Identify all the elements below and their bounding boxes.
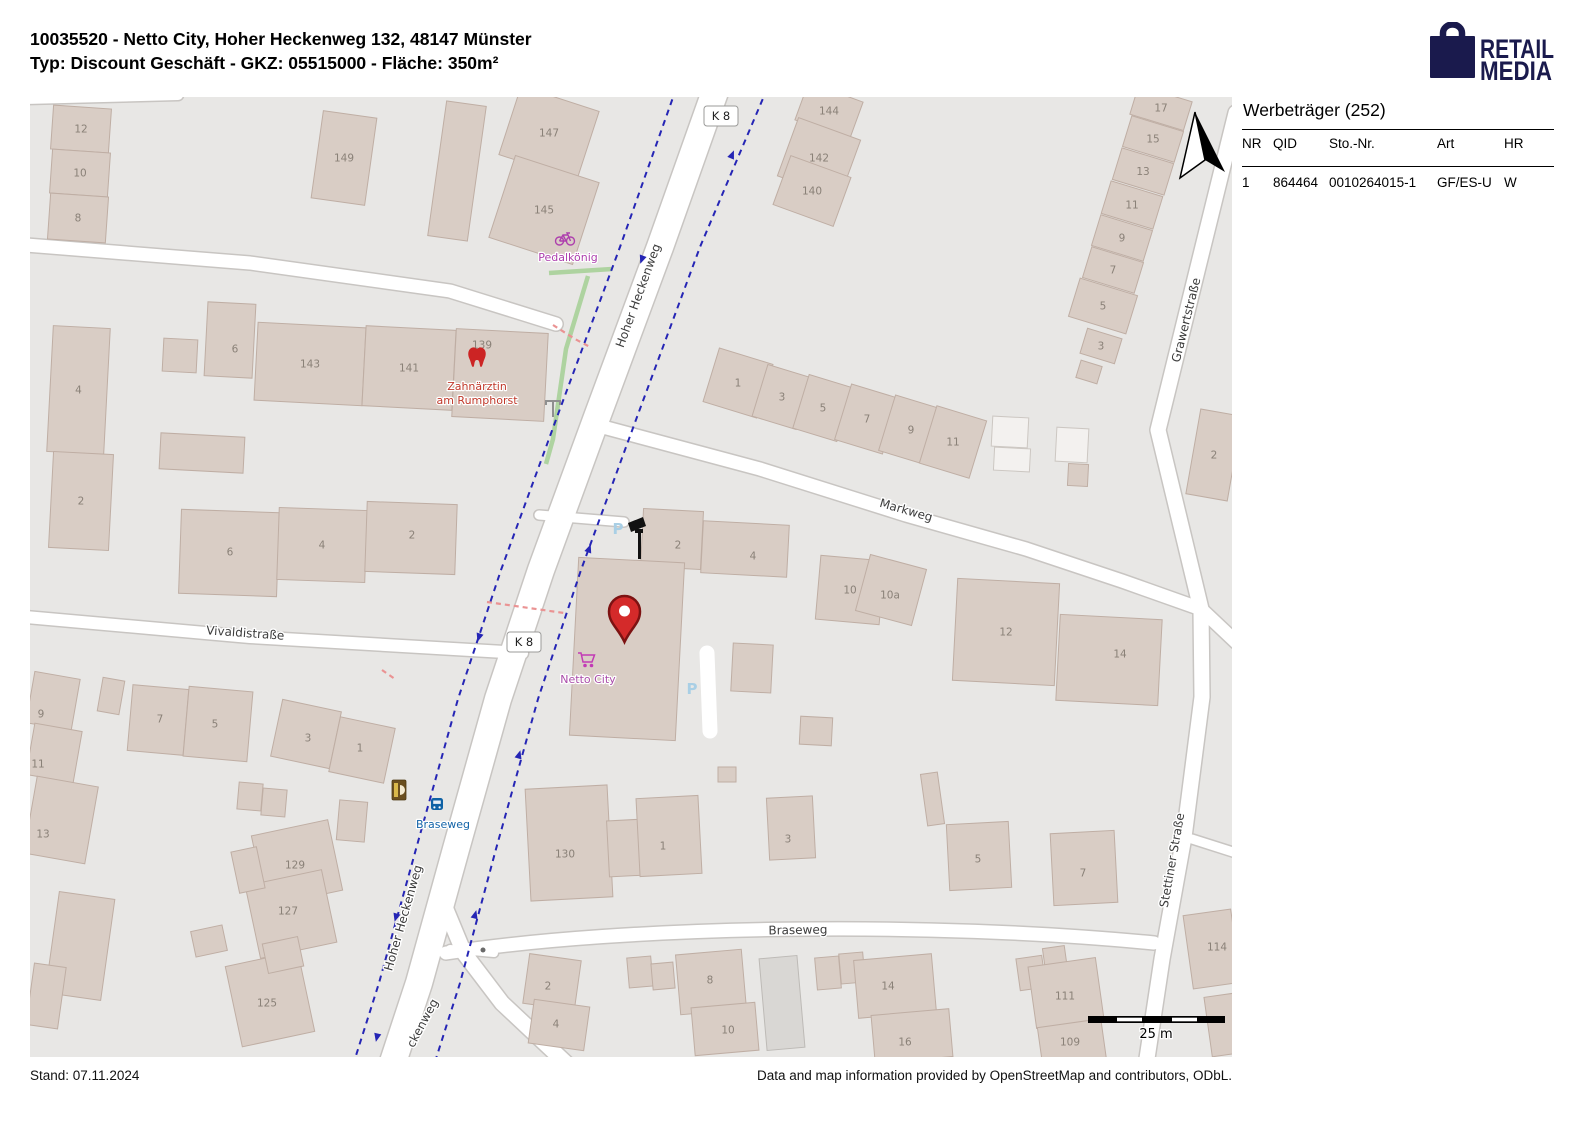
building (452, 329, 548, 422)
dentist-label-line2: am Rumphorst (436, 394, 518, 407)
building-number: 129 (285, 860, 305, 872)
table-header-row: NR QID Sto.-Nr. Art HR (1242, 130, 1554, 158)
building-number: 7 (1080, 868, 1087, 880)
building (651, 962, 675, 990)
building-number: 130 (555, 849, 575, 861)
building-number: 2 (545, 981, 552, 993)
building-number: 8 (707, 975, 714, 987)
store-title: 10035520 - Netto City, Hoher Heckenweg 1… (30, 28, 532, 52)
building-number: 144 (819, 106, 839, 118)
building-number: 14 (1113, 649, 1127, 661)
cell-art: GF/ES-U (1437, 175, 1504, 190)
building-number: 8 (75, 213, 82, 225)
building (993, 447, 1030, 472)
building-number: 16 (898, 1037, 912, 1049)
building-number: 12 (999, 627, 1012, 639)
building-number: 13 (36, 829, 49, 841)
parking-letter: P (687, 680, 698, 698)
building-number: 10 (73, 168, 86, 180)
building (799, 716, 832, 746)
building (731, 643, 773, 693)
bike-shop-label: Pedalkönig (538, 251, 598, 264)
building (428, 101, 487, 241)
building-number: 12 (74, 124, 87, 136)
werbetraeger-panel: Werbeträger (252) NR QID Sto.-Nr. Art HR… (1242, 100, 1554, 190)
building-number: 6 (232, 344, 239, 356)
building (871, 1009, 953, 1057)
road-ref-label: K 8 (515, 635, 534, 649)
cell-hr: W (1504, 175, 1554, 190)
retail-media-logo: RETAIL MEDIA (1428, 22, 1560, 91)
building (701, 521, 790, 577)
col-qid: QID (1273, 136, 1329, 151)
building (1067, 463, 1088, 486)
street-label: Braseweg (768, 922, 827, 937)
building-number: 17 (1154, 103, 1167, 115)
col-nr: NR (1242, 136, 1273, 151)
building-number: 10 (721, 1025, 734, 1037)
building-number: 10a (880, 590, 900, 602)
building-number: 3 (779, 392, 786, 404)
building-number: 6 (227, 547, 234, 559)
building (30, 963, 66, 1029)
building (759, 956, 805, 1051)
cell-stonr: 0010264015-1 (1329, 175, 1437, 190)
building (204, 302, 256, 378)
building-number: 1 (660, 841, 667, 853)
building-number: 9 (1119, 233, 1126, 245)
logo-text-media: MEDIA (1480, 56, 1552, 86)
building (854, 954, 937, 1019)
bus-stop-label: Braseweg (416, 818, 470, 831)
building (261, 788, 287, 817)
building-number: 2 (1211, 450, 1218, 462)
building (920, 772, 944, 826)
building-number: 147 (539, 128, 559, 140)
building-number: 1 (735, 378, 742, 390)
netto-building (569, 557, 684, 740)
col-art: Art (1437, 136, 1504, 151)
building-number: 3 (305, 733, 312, 745)
building-number: 127 (278, 906, 298, 918)
building-number: 141 (399, 363, 419, 375)
cell-nr: 1 (1242, 175, 1273, 190)
building-number: 143 (300, 359, 320, 371)
dentist-label-line1: Zahnärztin (447, 380, 507, 393)
building (237, 782, 263, 811)
road-service (30, 245, 556, 324)
building-number: 14 (881, 981, 895, 993)
table-row: 1 864464 0010264015-1 GF/ES-U W (1242, 167, 1554, 190)
building-number: 11 (1125, 200, 1138, 212)
building-number: 9 (38, 709, 45, 721)
buildings-layer: 1210814914714561431411394264214414214013… (30, 97, 1232, 1057)
building (336, 800, 367, 842)
building (30, 723, 82, 783)
building (1055, 427, 1089, 463)
building-number: 109 (1060, 1037, 1080, 1049)
road-ref-badge: K 8 (704, 106, 738, 126)
building-number: 149 (334, 153, 354, 165)
scale-bar: 25 m (1088, 1016, 1225, 1042)
road-ref-label: K 8 (712, 109, 731, 123)
report-page: 10035520 - Netto City, Hoher Heckenweg 1… (0, 0, 1587, 1123)
building (718, 767, 736, 782)
building (525, 785, 613, 901)
building-number: 145 (534, 205, 554, 217)
building (159, 433, 245, 473)
building-number: 3 (785, 834, 792, 846)
shopping-bag-icon (1430, 25, 1475, 78)
map-svg: 1210814914714561431411394264214414214013… (30, 97, 1232, 1057)
page-header: 10035520 - Netto City, Hoher Heckenweg 1… (30, 28, 532, 75)
building-number: 5 (212, 719, 219, 731)
building-number: 10 (843, 585, 856, 597)
building-number: 5 (1100, 301, 1107, 313)
building-number: 13 (1136, 166, 1149, 178)
building-number: 111 (1055, 991, 1075, 1003)
building-number: 4 (750, 551, 757, 563)
col-hr: HR (1504, 136, 1554, 151)
building (30, 671, 80, 730)
panel-title: Werbeträger (252) (1243, 100, 1554, 121)
scale-label: 25 m (1139, 1027, 1172, 1042)
building (1186, 409, 1232, 501)
parking-letter: P (613, 520, 624, 538)
building-number: 11 (31, 759, 44, 771)
building-number: 125 (257, 998, 277, 1010)
building-number: 140 (802, 186, 822, 198)
building-number: 4 (319, 540, 326, 552)
building-number: 7 (864, 414, 871, 426)
bollard-dot (481, 948, 486, 953)
building-number: 3 (1098, 341, 1105, 353)
building-number: 11 (946, 437, 959, 449)
building-number: 4 (553, 1019, 560, 1031)
amenity-icon (392, 780, 406, 800)
building (1204, 993, 1232, 1057)
building (30, 776, 98, 864)
building-number: 4 (75, 385, 82, 397)
building-number: 114 (1207, 942, 1227, 954)
logo-svg: RETAIL MEDIA (1428, 22, 1560, 86)
parking-aisle (707, 653, 710, 731)
building-number: 2 (78, 496, 85, 508)
road-ref-badge: K 8 (507, 632, 541, 652)
store-subtitle: Typ: Discount Geschäft - GKZ: 05515000 -… (30, 52, 532, 76)
building-number: 2 (675, 540, 682, 552)
building (627, 956, 654, 988)
building (162, 338, 198, 373)
building-number: 7 (157, 714, 164, 726)
building (641, 508, 704, 569)
bus-stop-icon (431, 798, 443, 810)
building-number: 5 (820, 403, 827, 415)
building (766, 796, 815, 860)
building-number: 5 (975, 854, 982, 866)
footer-attribution: Data and map information provided by Ope… (30, 1068, 1232, 1083)
building (815, 956, 842, 990)
building (636, 795, 702, 876)
cell-qid: 864464 (1273, 175, 1329, 190)
building (1076, 360, 1102, 384)
building-number: 142 (809, 153, 829, 165)
building (991, 416, 1029, 448)
building (191, 925, 228, 957)
building (97, 677, 125, 714)
building-number: 2 (409, 530, 416, 542)
building-number: 1 (357, 743, 364, 755)
map: 1210814914714561431411394264214414214013… (30, 97, 1232, 1057)
building (1056, 614, 1162, 705)
building-number: 15 (1146, 134, 1159, 146)
building-number: 9 (908, 425, 915, 437)
col-stonr: Sto.-Nr. (1329, 136, 1437, 151)
supermarket-label: Netto City (560, 673, 616, 686)
building-number: 7 (1110, 265, 1117, 277)
